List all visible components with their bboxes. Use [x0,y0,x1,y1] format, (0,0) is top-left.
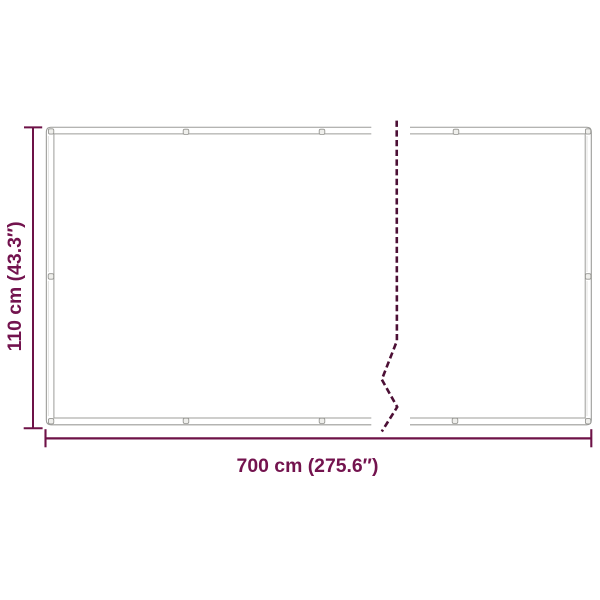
svg-text:700 cm (275.6″): 700 cm (275.6″) [237,455,379,477]
svg-text:110 cm (43.3″): 110 cm (43.3″) [4,221,26,351]
